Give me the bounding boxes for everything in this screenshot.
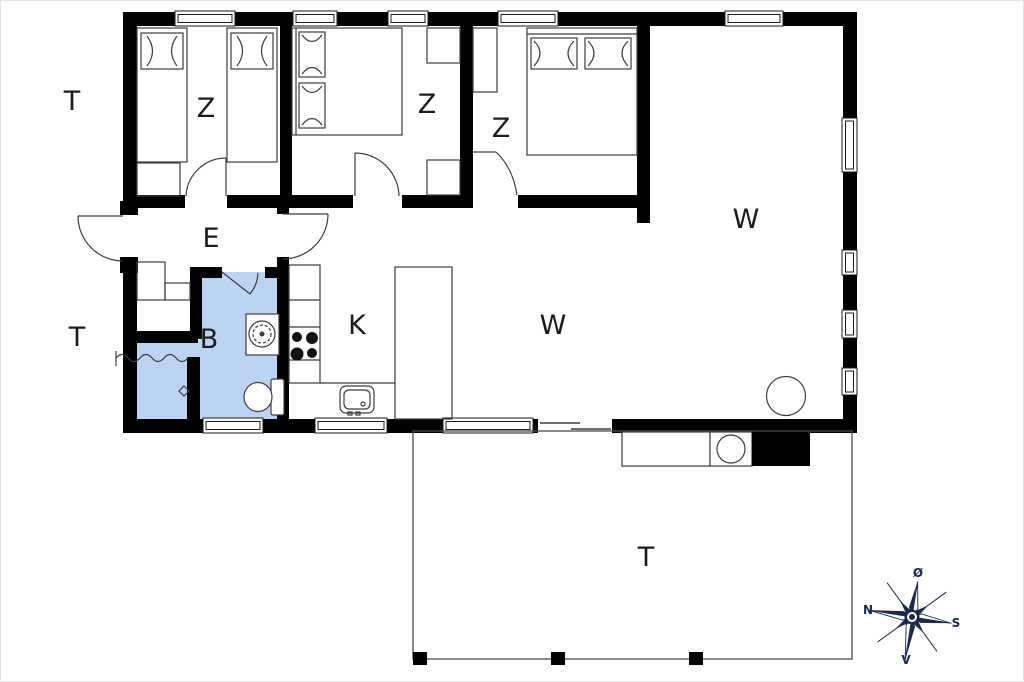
room-label-bedroom-3: Z [492, 113, 511, 144]
room-label-bedroom-1: Z [197, 93, 216, 124]
compass-south-label: S [952, 616, 961, 630]
room-label-bedroom-2: Z [418, 89, 437, 120]
window [842, 310, 857, 338]
entrance-door-gap [123, 215, 137, 257]
floor-plan: T Z Z Z W E T B K W T [0, 0, 1024, 682]
window [842, 118, 857, 172]
window [293, 11, 337, 26]
window [388, 11, 428, 26]
outdoor-kitchen [622, 432, 810, 466]
room-label-entrance: E [202, 223, 219, 254]
floor-plan-page: T Z Z Z W E T B K W T [0, 0, 1024, 682]
room-label-terrace-top: T [63, 86, 81, 117]
washbasin [246, 314, 279, 355]
window [315, 418, 387, 433]
room-label-bathroom: B [200, 324, 219, 355]
toilet [244, 379, 284, 415]
window [842, 368, 857, 395]
window [725, 11, 783, 26]
window [203, 418, 263, 433]
compass-west-label: V [901, 653, 911, 667]
window [498, 11, 558, 26]
window [175, 11, 235, 26]
kitchen-sink [340, 386, 374, 415]
room-label-kitchen: K [348, 310, 367, 341]
room-label-terrace-bottom: T [637, 542, 655, 573]
room-label-living-room-2: W [540, 310, 567, 341]
room-label-living-room: W [733, 204, 760, 235]
compass-east-label: Ø [913, 566, 923, 580]
room-label-terrace-left: T [68, 322, 86, 353]
window [842, 250, 857, 275]
compass-north-label: N [863, 603, 873, 617]
